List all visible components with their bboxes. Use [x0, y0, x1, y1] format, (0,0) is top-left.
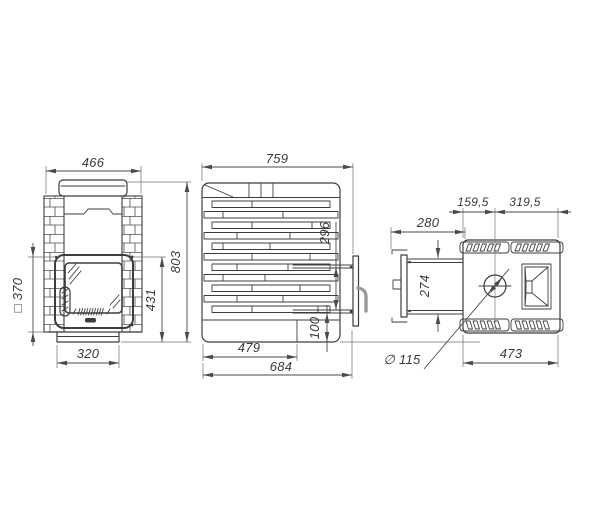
door-air-grille [73, 309, 110, 316]
side-door-handle [358, 288, 366, 311]
dim-top-tunnel-length: 280 [416, 215, 440, 230]
top-door-handle [393, 280, 401, 289]
top-vent-band-upper [460, 242, 563, 253]
side-top-flap-diagonal [205, 185, 233, 197]
top-vent-band-lower [460, 319, 563, 331]
technical-drawing-page: 466 □ 370 431 803 320 [0, 0, 600, 531]
dim-side-depth-with-door: 684 [270, 359, 293, 374]
dim-top-tunnel-width: 274 [417, 275, 432, 299]
dim-front-door-to-floor: 431 [143, 289, 158, 312]
dim-front-door-square: □ 370 [10, 277, 25, 312]
front-lintel-notch [64, 209, 122, 214]
front-base-pedestal [44, 332, 142, 342]
ash-damper [85, 318, 96, 323]
side-door-plate [353, 256, 359, 326]
dim-top-chimney-diameter: ∅ 115 [383, 352, 421, 367]
dim-front-overall-height: 803 [168, 250, 183, 273]
side-firebox-tunnel [293, 256, 366, 326]
stove-drawing-svg: 466 □ 370 431 803 320 [0, 0, 600, 531]
dim-front-overall-width: 466 [82, 155, 105, 170]
dim-top-chimney-to-back: 319,5 [509, 195, 541, 209]
dim-side-tunnel-height: 296 [317, 221, 332, 245]
dim-top-body-width: 473 [500, 346, 523, 361]
dim-top-front-to-chimney: 159,5 [457, 195, 489, 209]
glass-reflection-hatch [68, 264, 120, 308]
top-firebox-chute [522, 264, 551, 309]
top-door-plate [401, 255, 407, 317]
door-glass [65, 263, 122, 313]
dim-front-base-width: 320 [77, 346, 100, 361]
dim-side-tunnel-to-floor: 100 [307, 316, 322, 339]
dim-side-overall-depth: 759 [266, 151, 289, 166]
dim-side-base-depth: 479 [238, 340, 261, 355]
front-view [44, 180, 142, 342]
stone-cage-slats [204, 201, 338, 313]
front-top-cap [59, 180, 127, 196]
